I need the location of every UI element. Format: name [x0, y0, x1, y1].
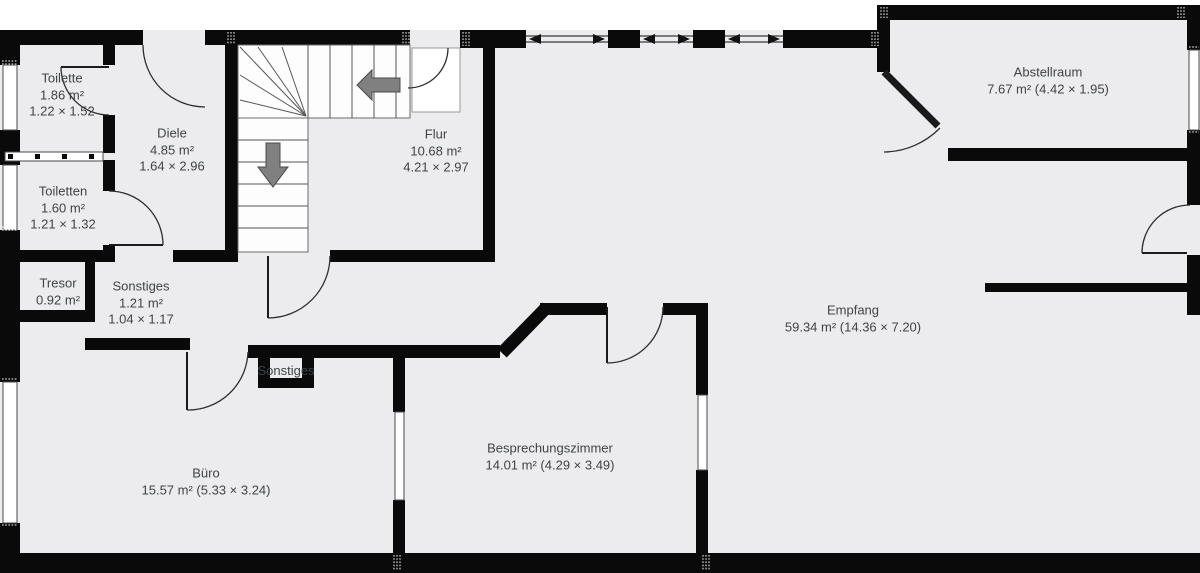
room-dims: 4.21 × 2.97: [403, 159, 468, 176]
room-area: 0.92 m²: [36, 292, 80, 309]
room-area: 15.57 m² (5.33 × 3.24): [142, 482, 271, 499]
room-label-toilette: Toilette 1.86 m² 1.22 × 1.52: [29, 70, 94, 120]
room-name: Toilette: [29, 70, 94, 87]
room-name: Besprechungszimmer: [486, 441, 615, 458]
room-area: 1.21 m²: [108, 295, 173, 312]
room-dims: 1.21 × 1.32: [30, 216, 95, 233]
room-name: Abstellraum: [987, 65, 1109, 82]
room-area: 4.85 m²: [139, 142, 204, 159]
room-name: Tresor: [36, 276, 80, 293]
room-name: Sonstiges: [108, 278, 173, 295]
room-label-empfang: Empfang 59.34 m² (14.36 × 7.20): [785, 303, 921, 336]
room-area: 14.01 m² (4.29 × 3.49): [486, 457, 615, 474]
room-name: Flur: [403, 126, 468, 143]
room-area: 7.67 m² (4.42 × 1.95): [987, 81, 1109, 98]
room-label-sonstiges-small: Sonstiges: [257, 363, 314, 380]
room-name: Sonstiges: [257, 363, 314, 380]
room-label-besprechungszimmer: Besprechungszimmer 14.01 m² (4.29 × 3.49…: [486, 441, 615, 474]
room-label-tresor: Tresor 0.92 m²: [36, 276, 80, 309]
room-name: Diele: [139, 125, 204, 142]
room-area: 1.86 m²: [29, 87, 94, 104]
room-label-diele: Diele 4.85 m² 1.64 × 2.96: [139, 125, 204, 175]
room-dims: 1.64 × 2.96: [139, 158, 204, 175]
room-label-flur: Flur 10.68 m² 4.21 × 2.97: [403, 126, 468, 176]
room-label-buero: Büro 15.57 m² (5.33 × 3.24): [142, 466, 271, 499]
room-area: 59.34 m² (14.36 × 7.20): [785, 319, 921, 336]
room-dims: 1.04 × 1.17: [108, 311, 173, 328]
room-name: Toiletten: [30, 183, 95, 200]
floor-plan: Toilette 1.86 m² 1.22 × 1.52 Toiletten 1…: [0, 0, 1200, 573]
room-area: 10.68 m²: [403, 143, 468, 160]
room-dims: 1.22 × 1.52: [29, 103, 94, 120]
room-label-toiletten: Toiletten 1.60 m² 1.21 × 1.32: [30, 183, 95, 233]
room-area: 1.60 m²: [30, 200, 95, 217]
room-label-abstellraum: Abstellraum 7.67 m² (4.42 × 1.95): [987, 65, 1109, 98]
room-name: Empfang: [785, 303, 921, 320]
room-label-sonstiges: Sonstiges 1.21 m² 1.04 × 1.17: [108, 278, 173, 328]
room-name: Büro: [142, 466, 271, 483]
